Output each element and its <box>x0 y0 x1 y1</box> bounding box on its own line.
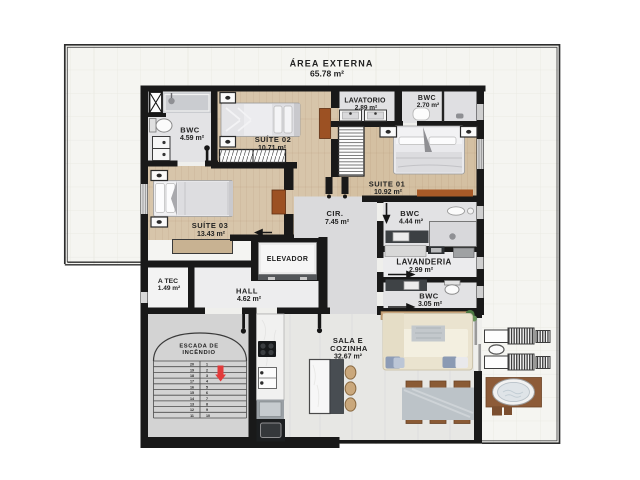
svg-text:10.71 m²: 10.71 m² <box>258 145 287 152</box>
svg-text:1: 1 <box>206 363 208 367</box>
svg-text:7: 7 <box>206 397 208 401</box>
svg-text:SUÍTE 03: SUÍTE 03 <box>192 221 229 230</box>
svg-text:10.92 m²: 10.92 m² <box>374 189 403 196</box>
svg-text:BWC: BWC <box>419 292 438 301</box>
svg-text:8: 8 <box>206 403 208 407</box>
svg-text:LAVATORIO: LAVATORIO <box>344 98 386 105</box>
svg-text:SUÍTE 02: SUÍTE 02 <box>255 135 292 144</box>
svg-text:7.45 m²: 7.45 m² <box>325 219 350 226</box>
svg-text:6: 6 <box>206 391 208 395</box>
svg-text:2.89 m²: 2.89 m² <box>355 105 378 112</box>
svg-text:19: 19 <box>190 368 194 372</box>
svg-text:HALL: HALL <box>236 287 258 296</box>
svg-text:13.43 m²: 13.43 m² <box>197 231 226 238</box>
svg-text:4: 4 <box>206 380 208 384</box>
svg-text:INCÊNDIO: INCÊNDIO <box>182 348 215 356</box>
svg-text:11: 11 <box>190 414 194 418</box>
svg-text:65.78 m²: 65.78 m² <box>310 69 344 79</box>
svg-text:10: 10 <box>206 414 210 418</box>
svg-text:2.99 m²: 2.99 m² <box>409 267 434 274</box>
svg-text:2: 2 <box>206 368 208 372</box>
svg-text:12: 12 <box>190 408 194 412</box>
svg-text:3: 3 <box>206 374 208 378</box>
svg-text:3.05 m²: 3.05 m² <box>418 301 443 308</box>
svg-text:1.49 m²: 1.49 m² <box>158 285 181 292</box>
svg-text:13: 13 <box>190 403 194 407</box>
svg-text:CIR.: CIR. <box>327 209 344 218</box>
svg-text:A TEC: A TEC <box>158 278 178 285</box>
svg-text:4.59 m²: 4.59 m² <box>180 135 205 142</box>
svg-text:COZINHA: COZINHA <box>330 344 368 353</box>
svg-text:BWC: BWC <box>418 95 436 102</box>
svg-text:9: 9 <box>206 408 208 412</box>
svg-text:SUITE 01: SUITE 01 <box>369 180 406 189</box>
svg-text:ESCADA DE: ESCADA DE <box>179 344 218 350</box>
svg-text:4.62 m²: 4.62 m² <box>237 296 262 303</box>
svg-text:5: 5 <box>206 385 208 389</box>
svg-text:16: 16 <box>190 385 194 389</box>
svg-text:15: 15 <box>190 391 194 395</box>
svg-text:BWC: BWC <box>180 126 199 135</box>
svg-text:14: 14 <box>190 397 194 401</box>
svg-text:BWC: BWC <box>400 209 419 218</box>
svg-text:17: 17 <box>190 380 194 384</box>
svg-text:2.70 m²: 2.70 m² <box>417 102 440 109</box>
svg-text:LAVANDERIA: LAVANDERIA <box>396 258 451 267</box>
svg-text:20: 20 <box>190 363 194 367</box>
svg-text:ELEVADOR: ELEVADOR <box>267 256 309 263</box>
svg-text:4.44 m²: 4.44 m² <box>399 219 424 226</box>
svg-text:ÁREA EXTERNA: ÁREA EXTERNA <box>290 59 374 69</box>
svg-text:18: 18 <box>190 374 194 378</box>
